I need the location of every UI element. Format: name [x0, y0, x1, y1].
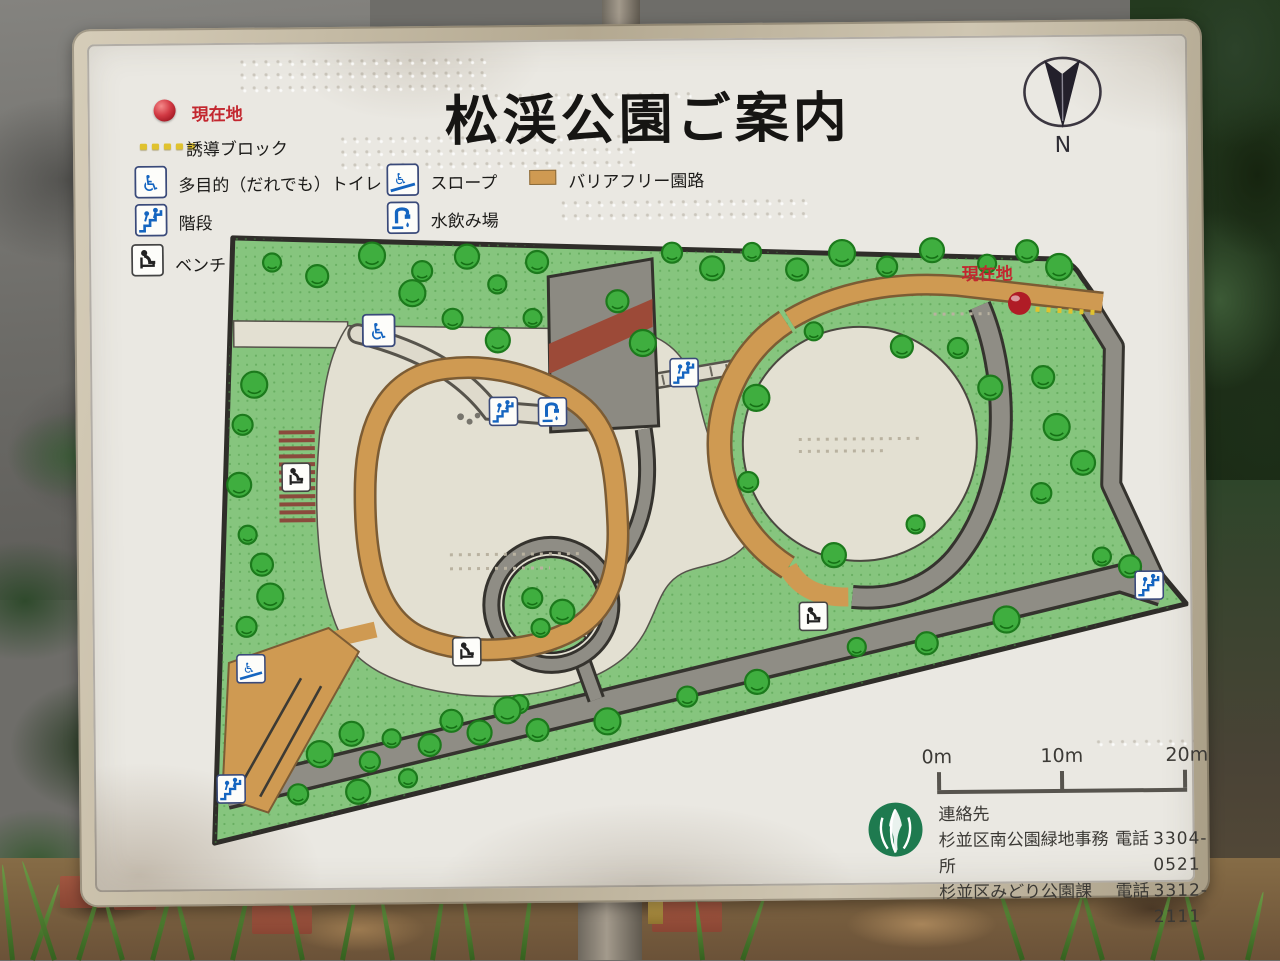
contact-tel-label: 電話: [1115, 878, 1154, 930]
legend-slope-label: スロープ: [430, 168, 497, 194]
compass-n-label: N: [1021, 133, 1105, 159]
pole-fitting: [648, 900, 663, 924]
contact-phone-number: 3312-2111: [1153, 877, 1241, 930]
legend-barrier-free-label: バリアフリー園路: [568, 166, 704, 192]
contact-office-name: 杉並区南公園緑地事務所: [939, 826, 1116, 880]
contact-row: 杉並区南公園緑地事務所 電話 3304-0521: [939, 825, 1242, 880]
map-slope-icon: [237, 655, 265, 683]
map-bench-icon-2: [453, 638, 481, 666]
scale-10: 10m: [1040, 745, 1083, 767]
map-bench-icon-1: [282, 463, 310, 491]
legend-water-label: 水飲み場: [431, 206, 499, 232]
scale-0: 0m: [921, 746, 952, 768]
legend-guidance-label: 誘導ブロック: [186, 134, 288, 160]
map-stairs-icon-3: [1135, 571, 1163, 599]
map-water-fountain-icon: [538, 398, 566, 426]
contact-heading: 連絡先: [938, 799, 1241, 828]
map-stairs-icon-4: [217, 775, 245, 803]
bench-icon: [131, 244, 164, 277]
sign-face: 現在地 誘導ブロック 多目的（だれでも）トイレ スロープ バリアフリー園路 階段…: [87, 34, 1195, 893]
park-guide-sign-board: 現在地 誘導ブロック 多目的（だれでも）トイレ スロープ バリアフリー園路 階段…: [72, 19, 1210, 908]
legend-toilet-label: 多目的（だれでも）トイレ: [178, 169, 382, 196]
wheelchair-slope-icon: [386, 163, 419, 196]
water-fountain-icon: [386, 201, 419, 234]
scale-bar: 0m 10m 20m: [922, 744, 1203, 805]
circular-plaza: [742, 326, 978, 562]
page-title: 松渓公園ご案内: [367, 72, 928, 156]
contact-block: 連絡先 杉並区南公園緑地事務所 電話 3304-0521 杉並区みどり公園課 電…: [938, 799, 1242, 932]
braille-strip: [558, 195, 808, 225]
contact-tel-label: 電話: [1115, 826, 1154, 878]
map-stairs-icon-2: [670, 358, 698, 386]
contact-phone-number: 3304-0521: [1153, 825, 1241, 878]
map-current-location-label: 現在地: [962, 263, 1013, 284]
compass: N: [1020, 49, 1105, 159]
scale-20: 20m: [1165, 744, 1208, 766]
tan-swatch-icon: [529, 170, 556, 185]
wheelchair-icon: [134, 166, 167, 199]
map-toilet-icon: [363, 314, 395, 346]
map-bench-icon-3: [799, 602, 827, 630]
compass-rose: [1020, 49, 1105, 134]
legend-current-location-label: 現在地: [191, 100, 242, 125]
legend-stairs-label: 階段: [179, 209, 213, 234]
map-stairs-icon-1: [489, 397, 517, 425]
legend-current-location-dot: [153, 99, 175, 121]
stairs-icon: [134, 204, 167, 237]
contact-office-name: 杉並区みどり公園課: [939, 878, 1116, 932]
brick: [252, 906, 312, 934]
contact-row: 杉並区みどり公園課 電話 3312-2111: [939, 877, 1242, 932]
suginami-green-logo: [866, 800, 925, 859]
